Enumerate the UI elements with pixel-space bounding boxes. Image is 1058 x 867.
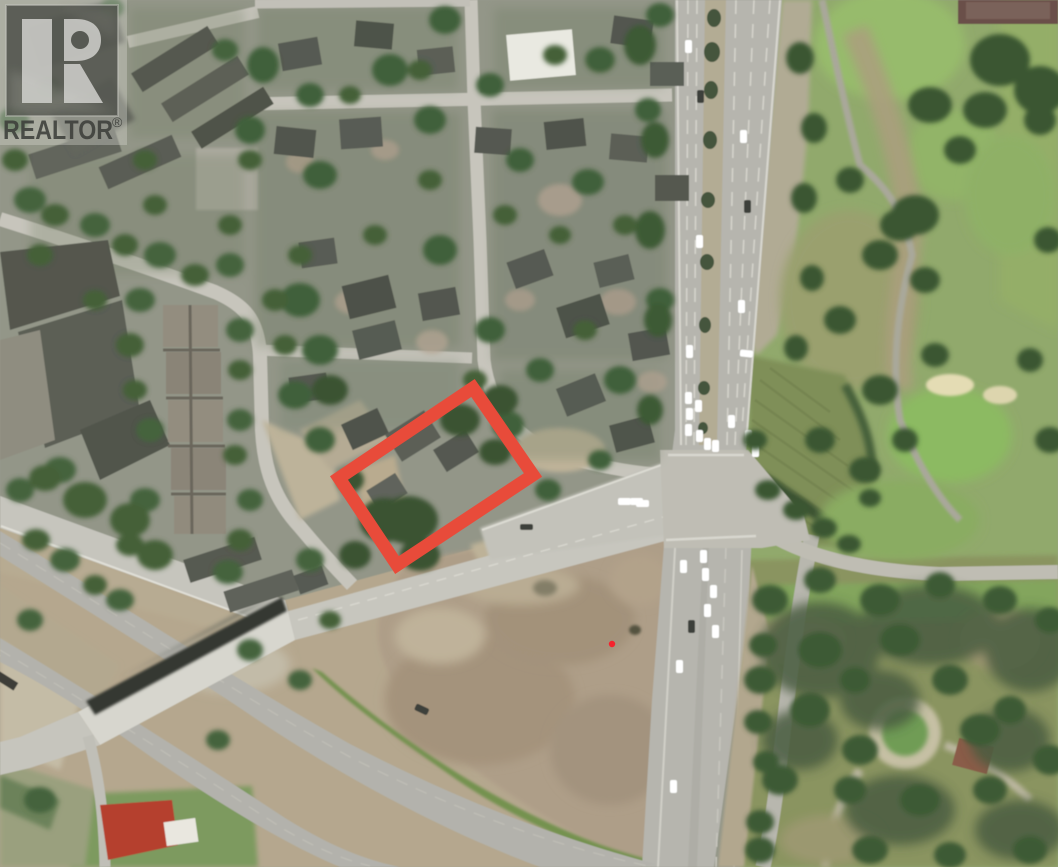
svg-text:®: ® xyxy=(112,114,123,130)
svg-text:REALTOR: REALTOR xyxy=(3,115,113,145)
